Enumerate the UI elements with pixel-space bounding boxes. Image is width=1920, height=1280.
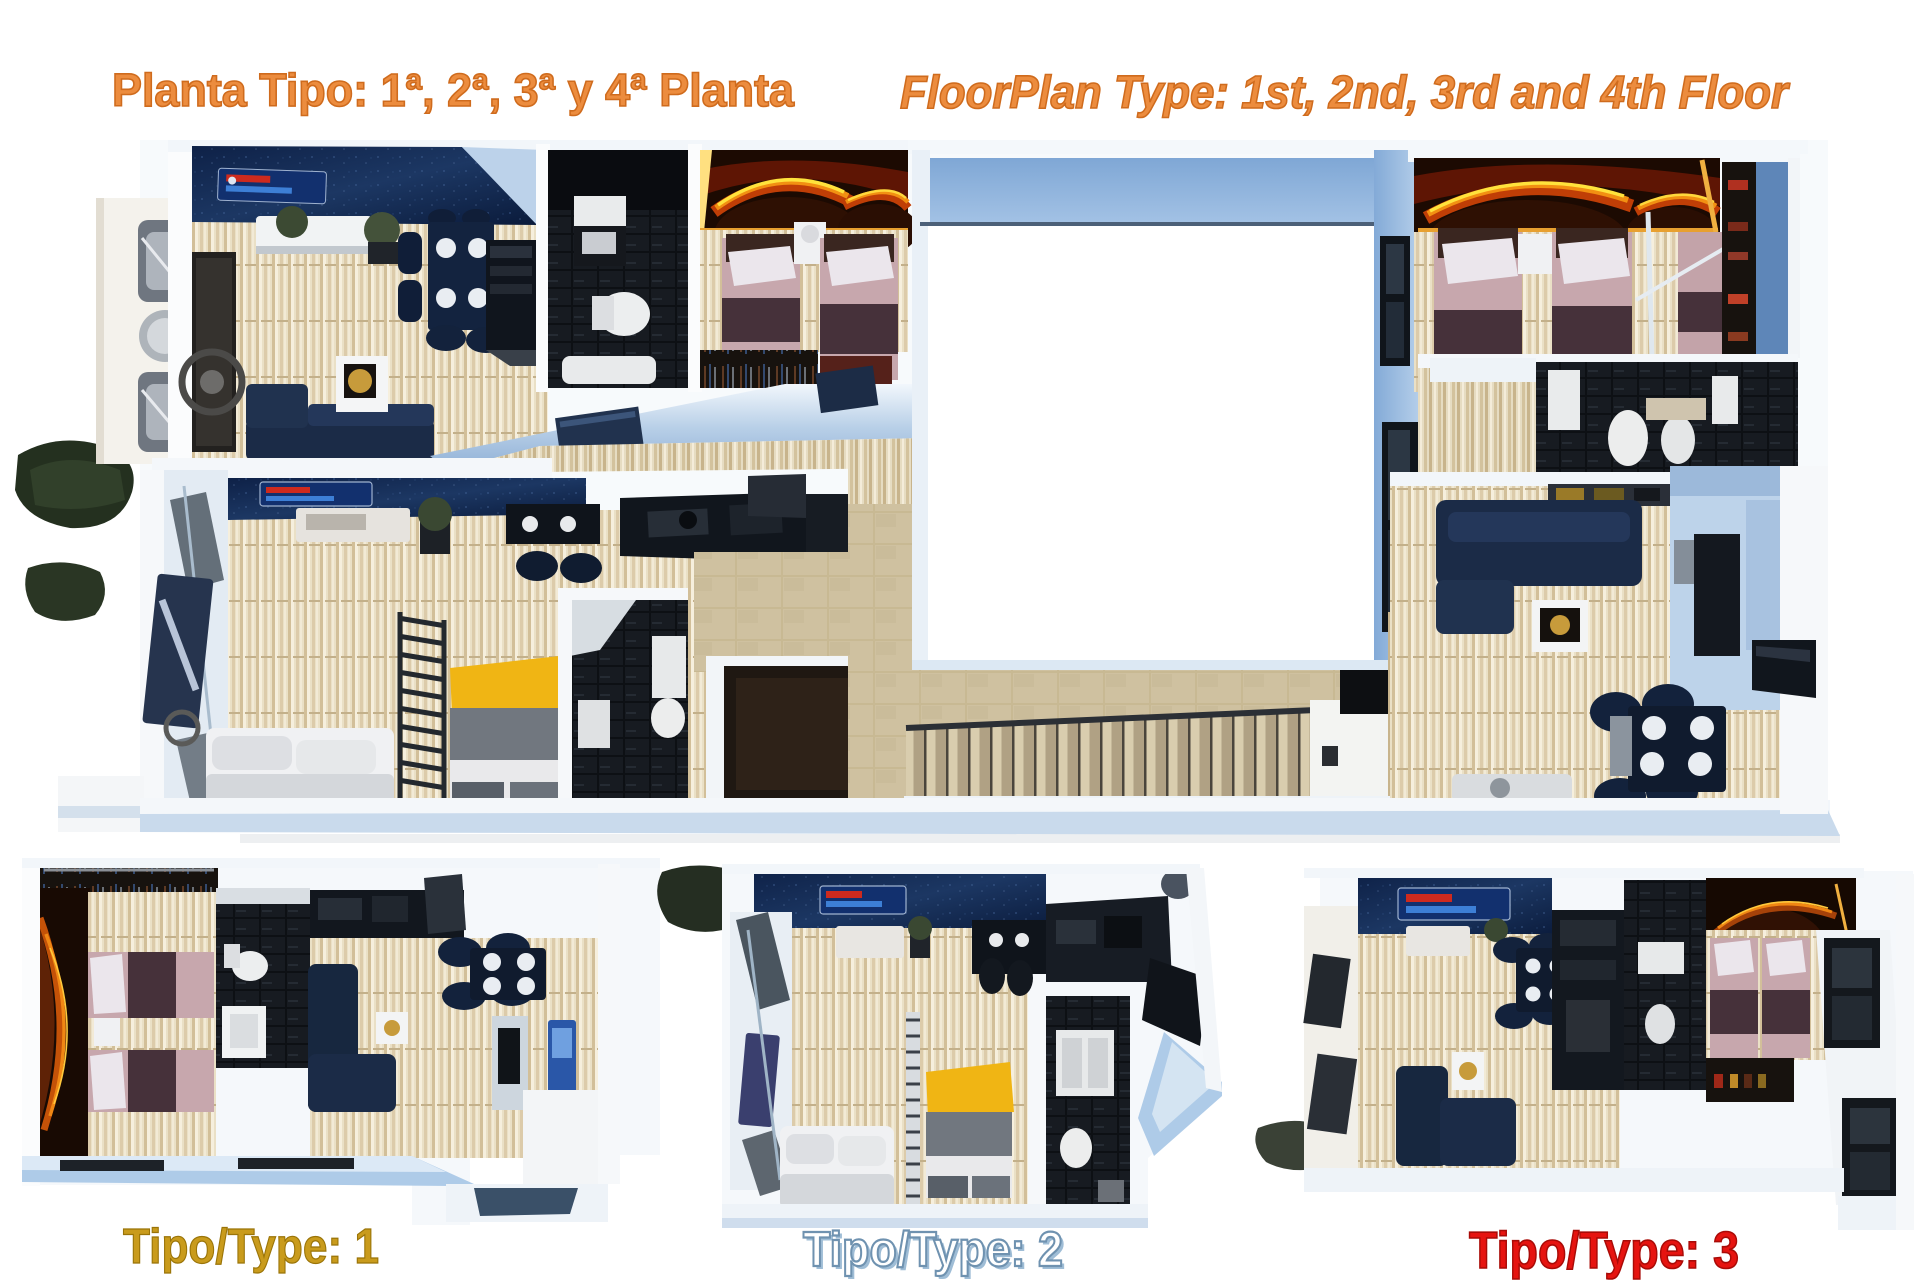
svg-text:Tipo/Type: 1: Tipo/Type: 1 <box>123 1220 379 1274</box>
svg-text:Tipo/Type: 2: Tipo/Type: 2 <box>803 1223 1063 1277</box>
svg-text:Planta Tipo: 1ª, 2ª, 3ª y 4ª P: Planta Tipo: 1ª, 2ª, 3ª y 4ª Planta <box>112 64 794 116</box>
svg-text:Tipo/Type: 3: Tipo/Type: 3 <box>1469 1222 1739 1280</box>
svg-text:FloorPlan Type: 1st, 2nd, 3rd: FloorPlan Type: 1st, 2nd, 3rd and 4th Fl… <box>900 66 1790 118</box>
